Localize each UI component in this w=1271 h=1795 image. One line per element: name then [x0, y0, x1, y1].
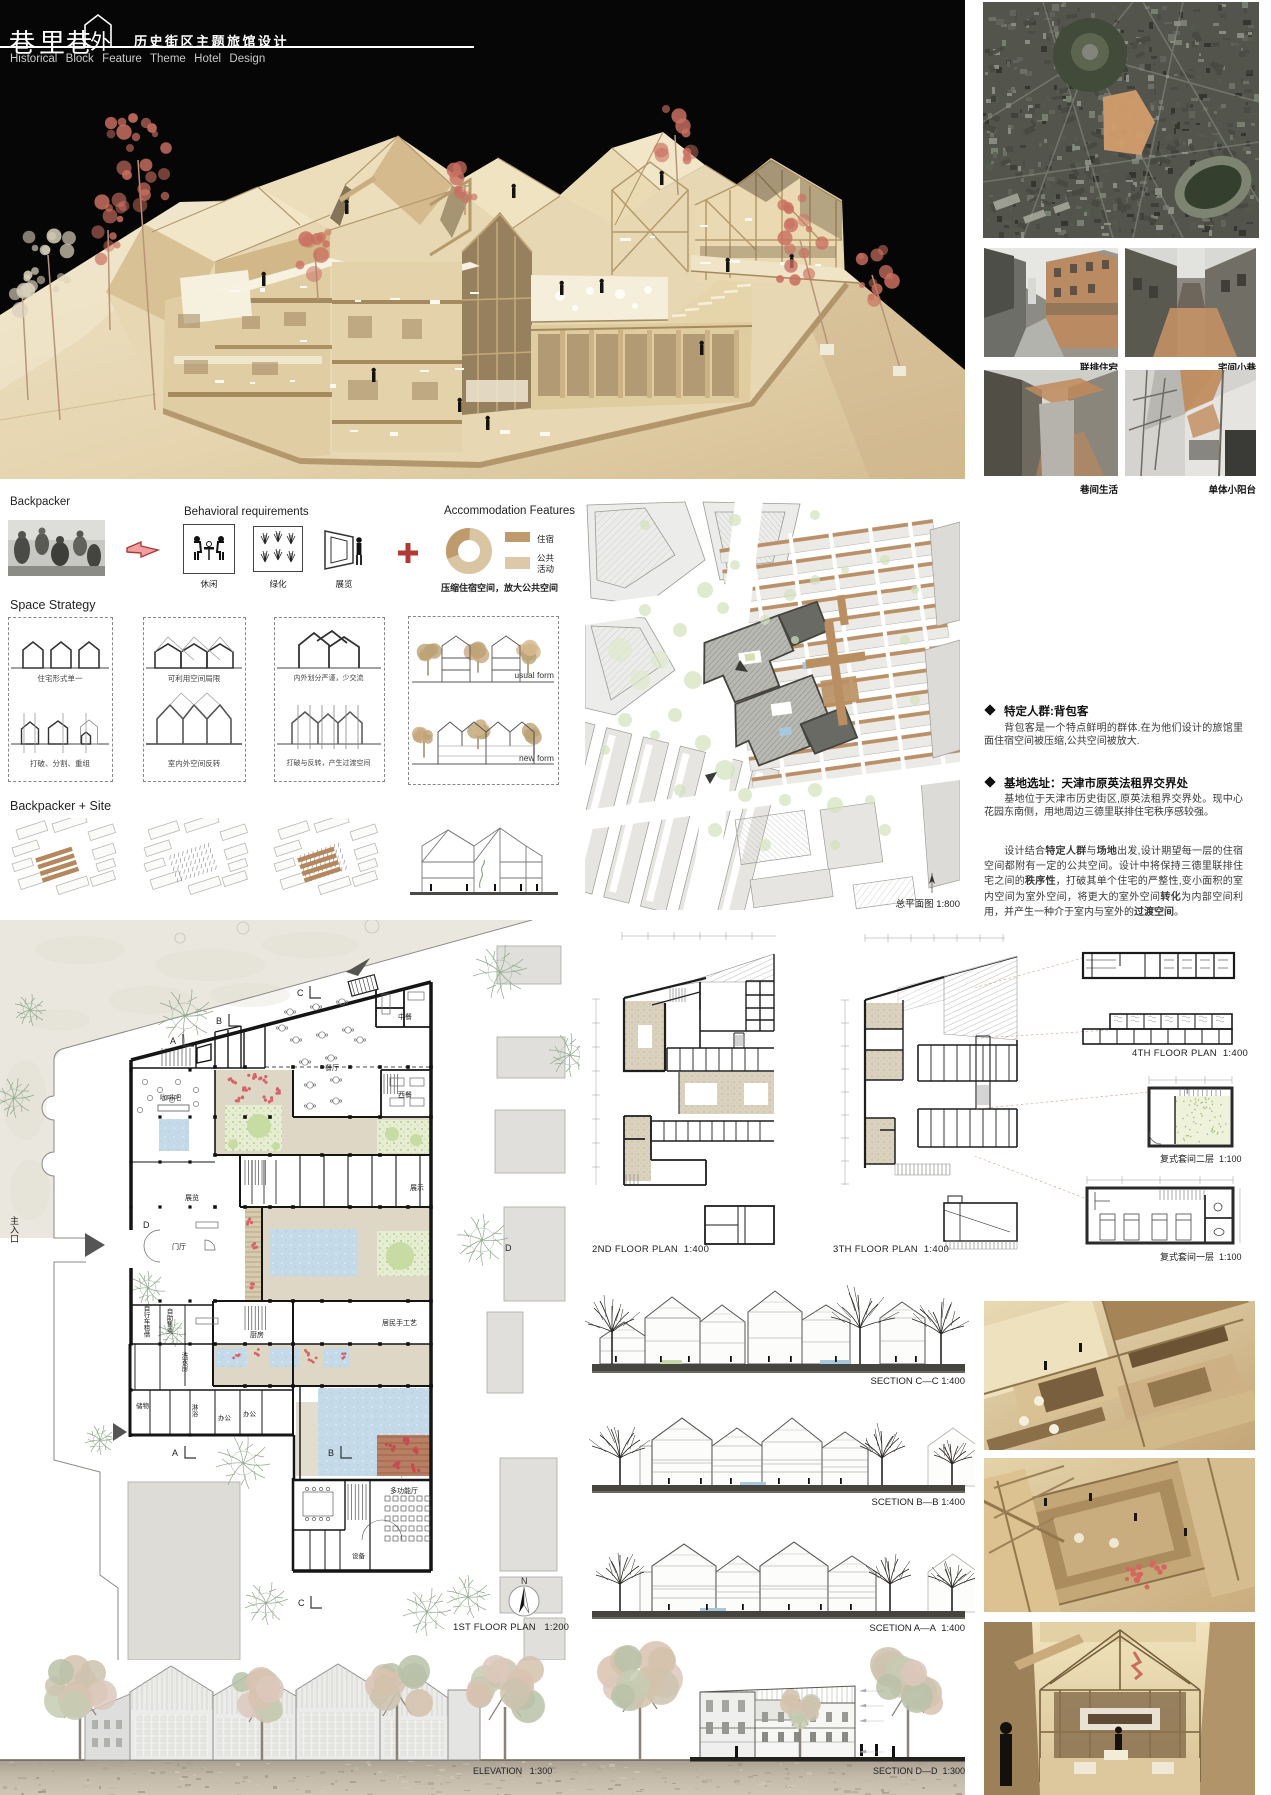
svg-text:new form: new form — [519, 753, 554, 763]
svg-text:usual form: usual form — [514, 670, 554, 680]
svg-text:N: N — [521, 1576, 528, 1586]
svg-text:T: T — [1185, 1089, 1190, 1096]
